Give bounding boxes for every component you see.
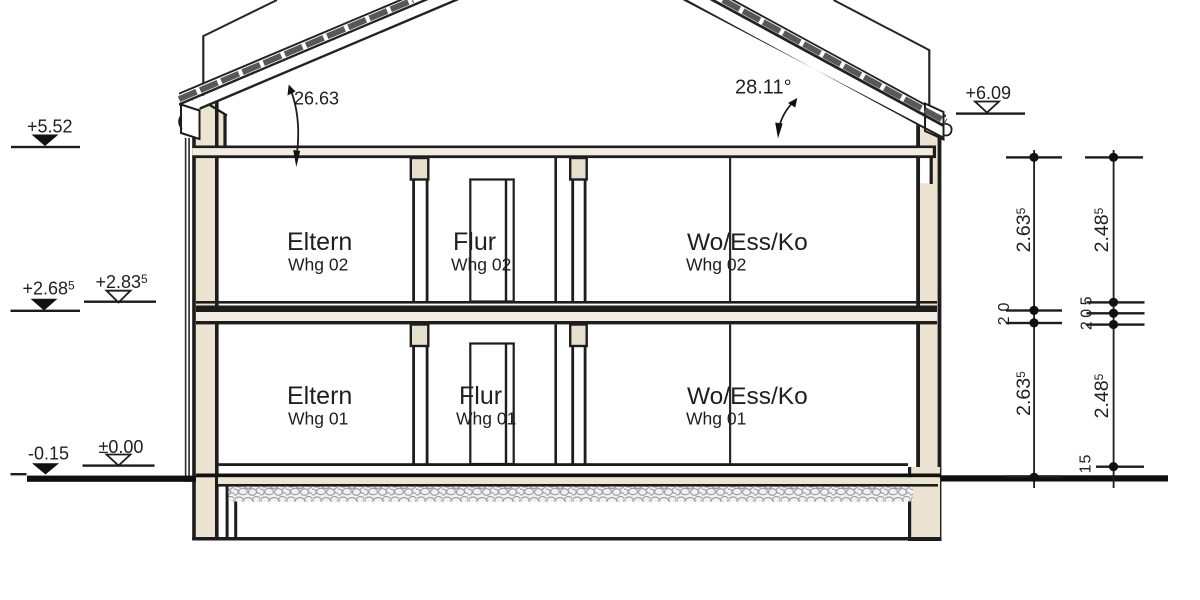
svg-text:Flur: Flur bbox=[459, 382, 502, 410]
svg-text:28.11°: 28.11° bbox=[735, 77, 792, 99]
svg-text:205: 205 bbox=[1079, 293, 1096, 330]
svg-text:+2.835: +2.835 bbox=[96, 272, 149, 292]
svg-text:Whg 01: Whg 01 bbox=[686, 409, 746, 429]
svg-text:Whg 02: Whg 02 bbox=[451, 255, 511, 275]
svg-text:-0.15: -0.15 bbox=[28, 444, 69, 464]
svg-text:Wo/Ess/Ko: Wo/Ess/Ko bbox=[687, 383, 808, 410]
svg-text:Whg 01: Whg 01 bbox=[288, 409, 348, 429]
svg-text:Eltern: Eltern bbox=[287, 382, 352, 410]
svg-text:+5.52: +5.52 bbox=[27, 117, 73, 137]
svg-text:26.63: 26.63 bbox=[294, 89, 339, 109]
svg-text:15: 15 bbox=[1078, 454, 1095, 474]
svg-text:+2.685: +2.685 bbox=[23, 279, 76, 299]
svg-text:Whg 02: Whg 02 bbox=[288, 255, 348, 275]
svg-text:20: 20 bbox=[996, 298, 1013, 326]
svg-text:Wo/Ess/Ko: Wo/Ess/Ko bbox=[687, 229, 808, 256]
svg-text:Eltern: Eltern bbox=[287, 228, 352, 256]
svg-text:Whg 01: Whg 01 bbox=[456, 409, 516, 429]
svg-text:+6.09: +6.09 bbox=[966, 83, 1012, 103]
svg-text:Whg 02: Whg 02 bbox=[686, 255, 746, 275]
svg-text:Flur: Flur bbox=[453, 228, 496, 256]
